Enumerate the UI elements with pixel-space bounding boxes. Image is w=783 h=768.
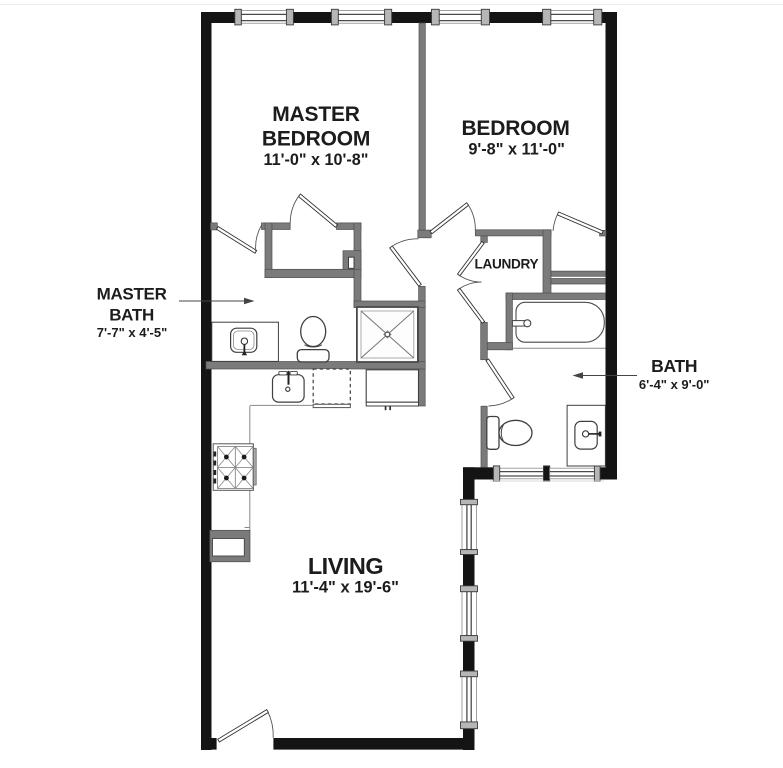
svg-text:BEDROOM: BEDROOM (461, 117, 569, 140)
svg-text:11'-0" x 10'-8": 11'-0" x 10'-8" (264, 151, 369, 169)
svg-text:MASTER: MASTER (272, 103, 360, 126)
svg-text:MASTER: MASTER (97, 285, 167, 304)
svg-text:BEDROOM: BEDROOM (262, 128, 370, 151)
svg-text:LAUNDRY: LAUNDRY (474, 257, 538, 272)
svg-text:6'-4" x 9'-0": 6'-4" x 9'-0" (639, 377, 710, 392)
svg-text:11'-4" x 19'-6": 11'-4" x 19'-6" (292, 579, 399, 597)
svg-text:7'-7" x 4'-5": 7'-7" x 4'-5" (97, 325, 168, 340)
svg-text:LIVING: LIVING (308, 553, 383, 579)
svg-text:9'-8" x 11'-0": 9'-8" x 11'-0" (468, 141, 565, 159)
svg-text:BATH: BATH (109, 306, 154, 325)
svg-text:BATH: BATH (651, 356, 697, 376)
